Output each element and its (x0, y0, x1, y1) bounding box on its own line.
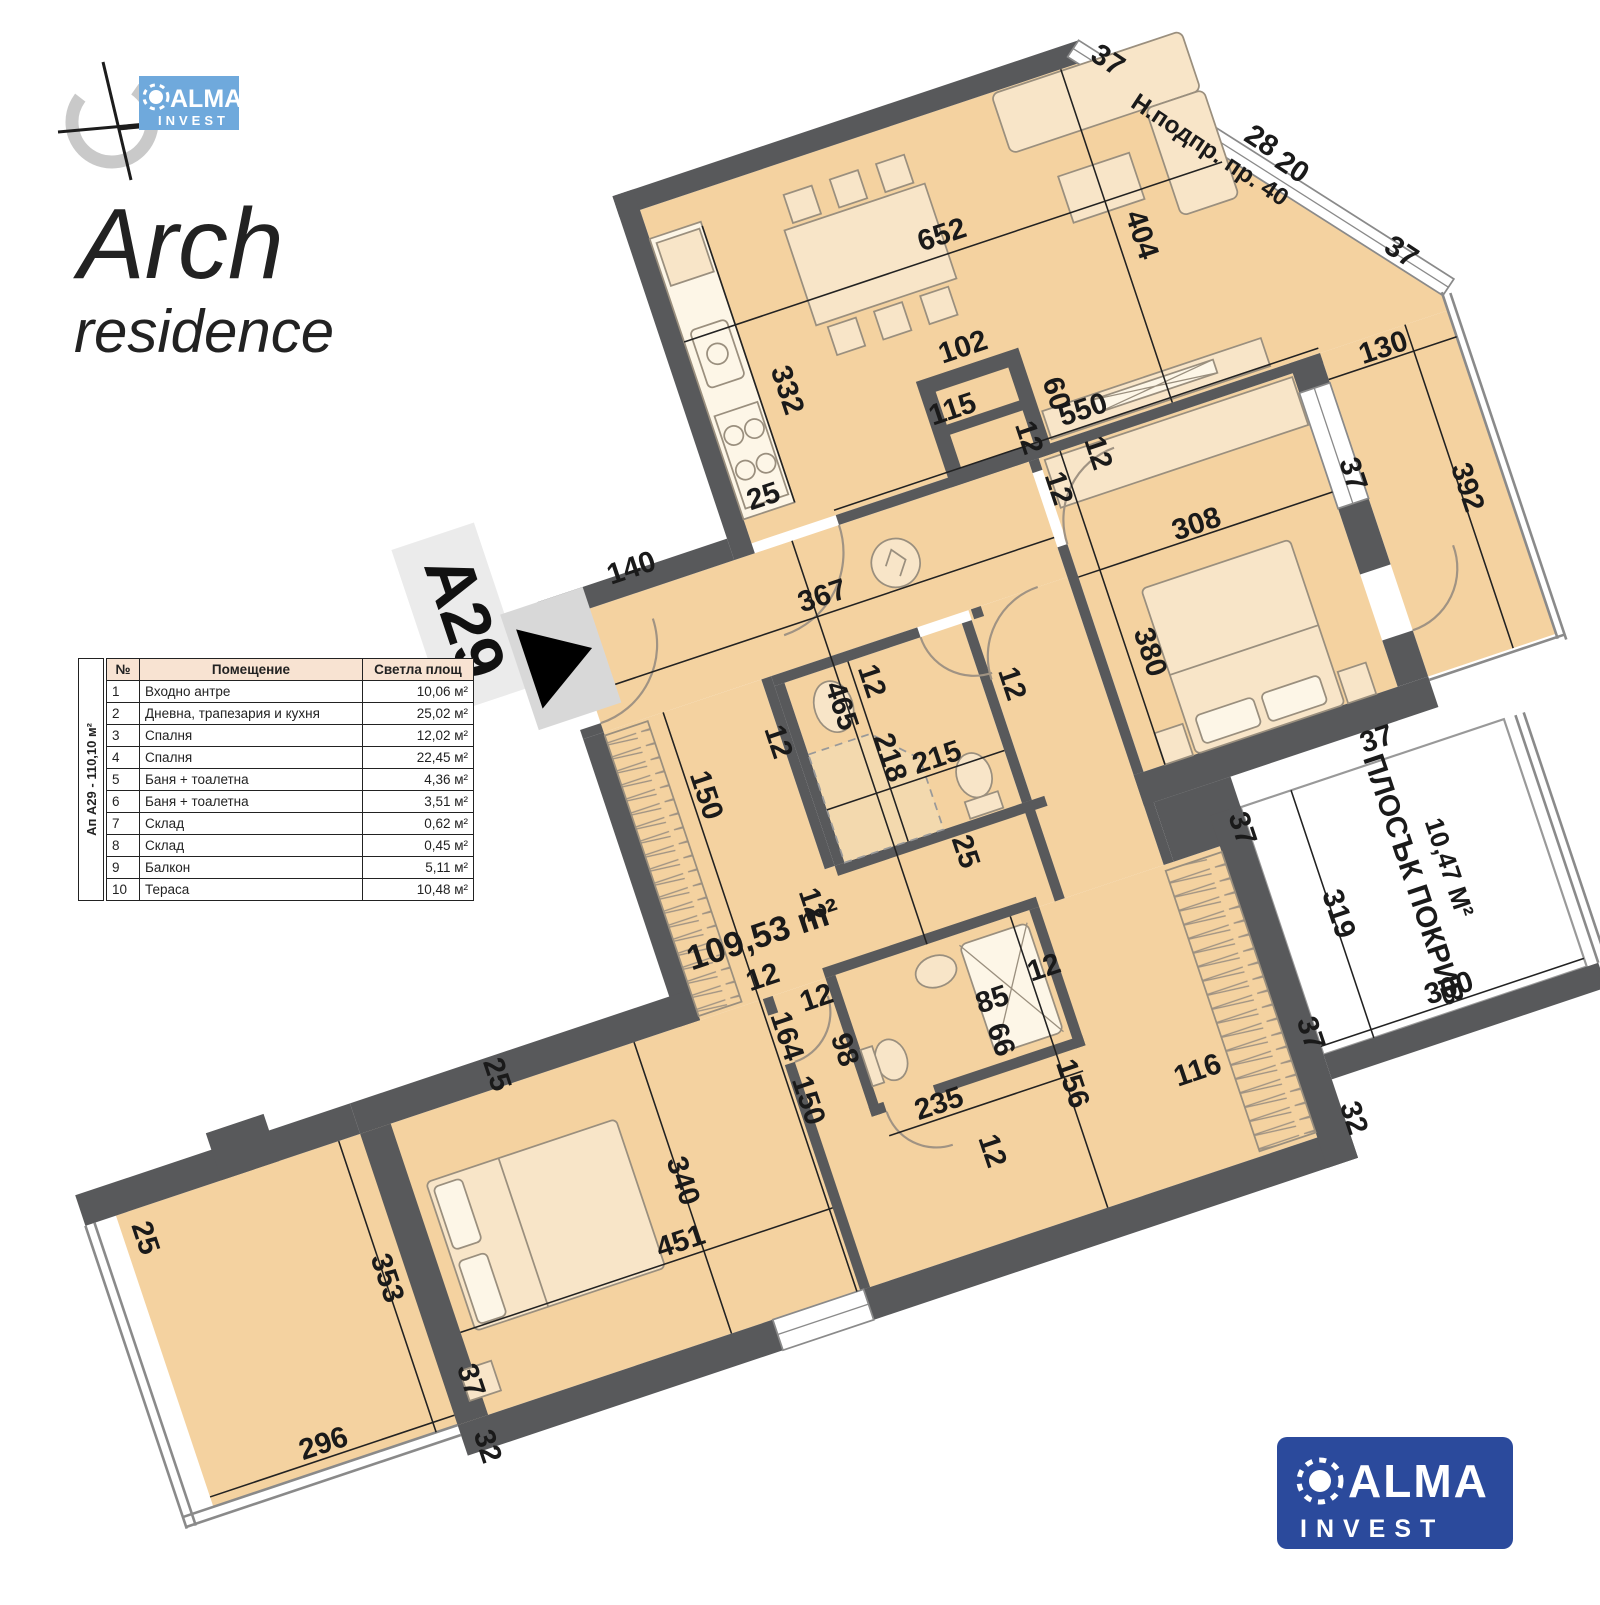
col-header-area: Светла площ (363, 659, 474, 681)
room-number: 2 (107, 703, 140, 725)
col-header-number: № (107, 659, 140, 681)
room-number: 7 (107, 813, 140, 835)
logo-alma-text: ALMA (1348, 1455, 1489, 1507)
room-area: 22,45 м² (363, 747, 474, 769)
alma-invest-logo-small: ALMA INVEST (139, 76, 242, 130)
floorplan-page: { "branding": { "project_title": "Arch",… (0, 0, 1600, 1600)
apartment-total-area: Ап А29 - 110,10 м² (78, 658, 104, 901)
room-number: 1 (107, 681, 140, 703)
room-area: 10,48 м² (363, 879, 474, 901)
room-name: Тераса (140, 879, 363, 901)
logo-alma-text: ALMA (170, 85, 242, 113)
table-row: 9Балкон5,11 м² (107, 857, 474, 879)
logo-invest-text: INVEST (1300, 1515, 1444, 1543)
room-name: Спалня (140, 725, 363, 747)
room-name: Баня + тоалетна (140, 769, 363, 791)
room-name: Склад (140, 813, 363, 835)
room-number: 10 (107, 879, 140, 901)
room-area: 4,36 м² (363, 769, 474, 791)
table-row: 1Входно антре10,06 м² (107, 681, 474, 703)
room-area: 12,02 м² (363, 725, 474, 747)
room-name: Балкон (140, 857, 363, 879)
table-row: 7Склад0,62 м² (107, 813, 474, 835)
room-name: Баня + тоалетна (140, 791, 363, 813)
room-area: 0,45 м² (363, 835, 474, 857)
table-row: 5Баня + тоалетна4,36 м² (107, 769, 474, 791)
project-title: Arch (73, 188, 284, 300)
table-row: 8Склад0,45 м² (107, 835, 474, 857)
room-name: Входно антре (140, 681, 363, 703)
project-subtitle: residence (74, 298, 334, 365)
table-row: 10Тераса10,48 м² (107, 879, 474, 901)
room-area: 0,62 м² (363, 813, 474, 835)
rooms-table: Ап А29 - 110,10 м² № Помещение Светла пл… (78, 658, 474, 901)
col-header-room: Помещение (140, 659, 363, 681)
table-row: 4Спалня22,45 м² (107, 747, 474, 769)
room-number: 6 (107, 791, 140, 813)
room-number: 3 (107, 725, 140, 747)
alma-invest-logo-large: ALMA INVEST (1277, 1437, 1513, 1549)
room-number: 9 (107, 857, 140, 879)
room-number: 5 (107, 769, 140, 791)
apartment-total-area-label: Ап А29 - 110,10 м² (84, 723, 99, 836)
room-number: 4 (107, 747, 140, 769)
room-name: Склад (140, 835, 363, 857)
table-row: 2Дневна, трапезария и кухня25,02 м² (107, 703, 474, 725)
room-name: Дневна, трапезария и кухня (140, 703, 363, 725)
room-area: 10,06 м² (363, 681, 474, 703)
logo-invest-text: INVEST (158, 113, 229, 128)
room-area: 25,02 м² (363, 703, 474, 725)
room-number: 8 (107, 835, 140, 857)
room-area: 5,11 м² (363, 857, 474, 879)
table-row: 6Баня + тоалетна3,51 м² (107, 791, 474, 813)
room-area: 3,51 м² (363, 791, 474, 813)
rooms-table-body: 1Входно антре10,06 м²2Дневна, трапезария… (107, 681, 474, 901)
table-row: 3Спалня12,02 м² (107, 725, 474, 747)
room-name: Спалня (140, 747, 363, 769)
